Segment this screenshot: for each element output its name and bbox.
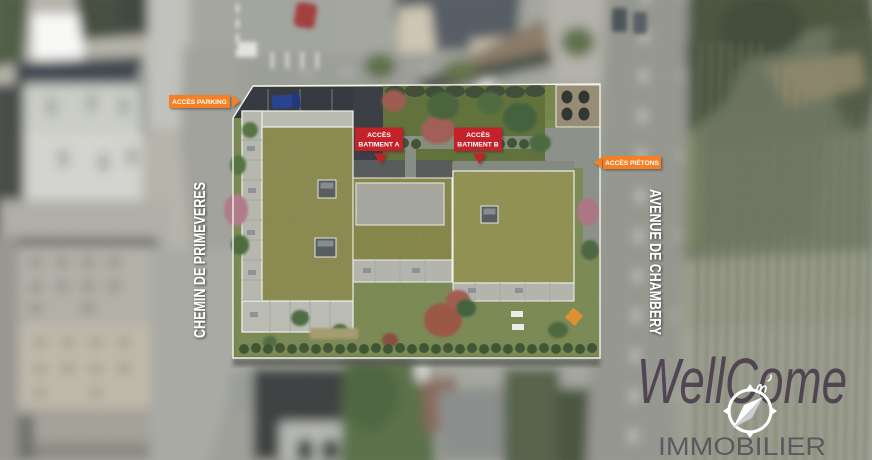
svg-text:AVENUE DE CHAMBERY: AVENUE DE CHAMBERY [646, 189, 663, 336]
svg-text:CHEMIN DE PRIMEVERES: CHEMIN DE PRIMEVERES [192, 182, 209, 338]
svg-text:WellCome: WellCome [637, 345, 847, 417]
svg-text:BATIMENT B: BATIMENT B [457, 142, 498, 149]
svg-text:ACCÈS PIÉTONS: ACCÈS PIÉTONS [605, 158, 659, 167]
svg-text:ACCÈS PARKING: ACCÈS PARKING [172, 97, 227, 106]
svg-text:ACCÈS: ACCÈS [367, 130, 391, 139]
svg-text:ACCÈS: ACCÈS [466, 130, 490, 139]
svg-text:IMMOBILIER: IMMOBILIER [658, 433, 826, 460]
svg-text:BATIMENT A: BATIMENT A [358, 142, 399, 149]
